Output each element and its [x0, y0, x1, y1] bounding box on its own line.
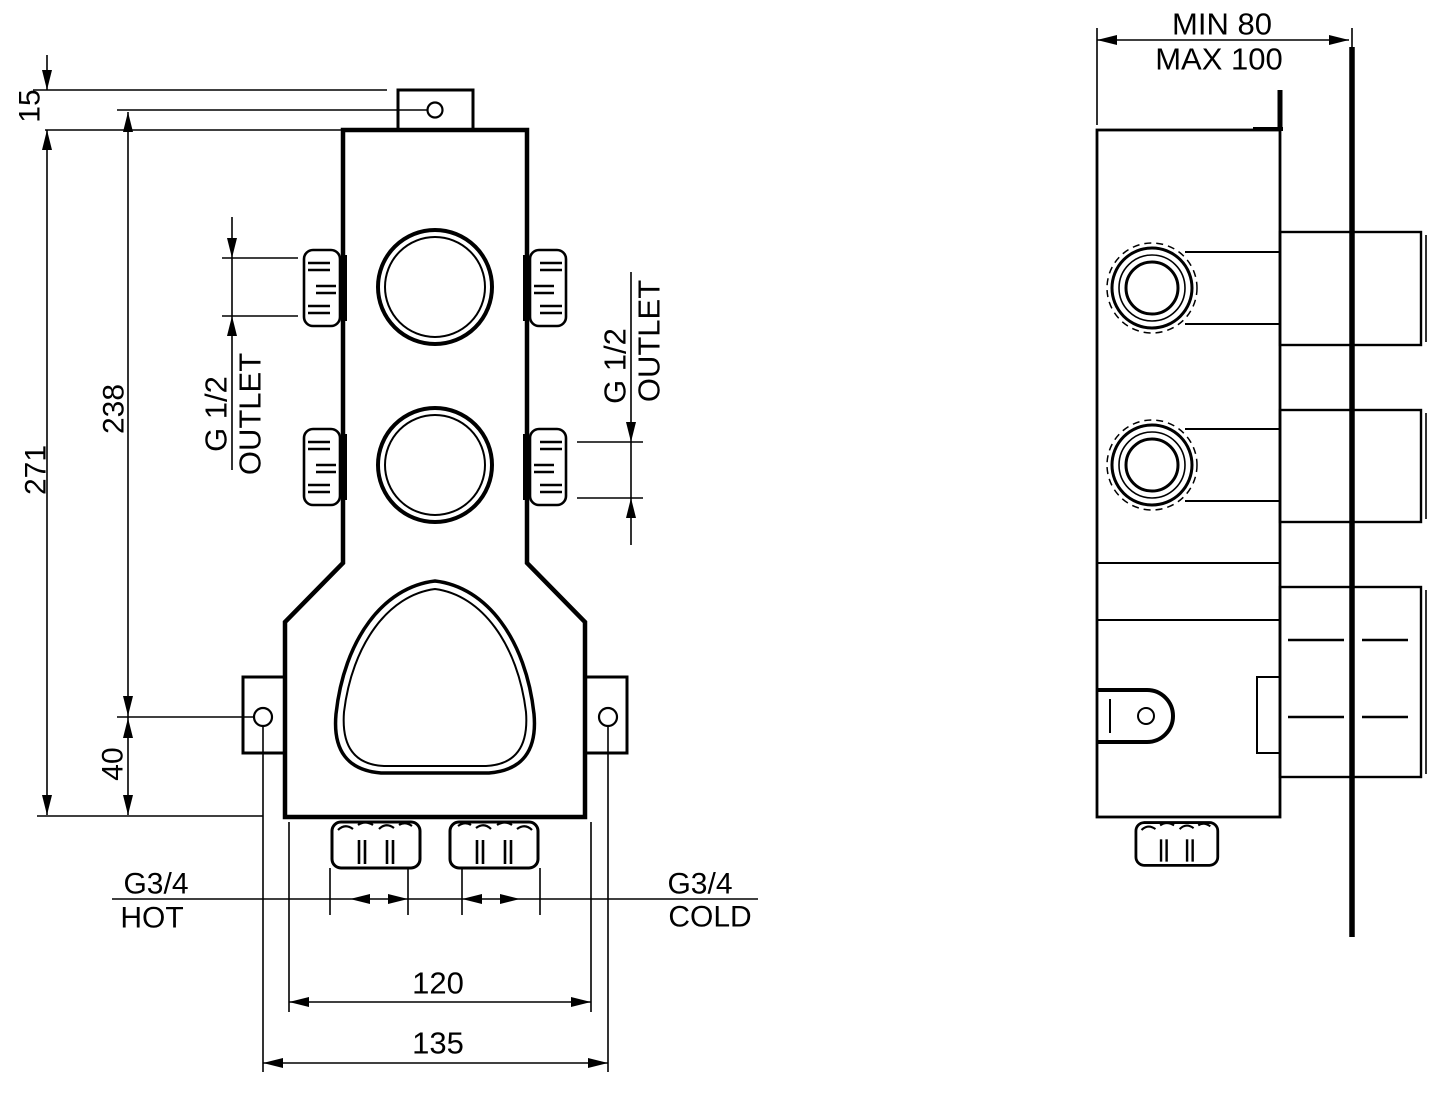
technical-drawing-sheet: 15 271 238 40 G 1/2 OUTLET G 1/2 OUTLET … — [0, 0, 1445, 1093]
inlet-fitting-cold — [450, 822, 538, 868]
side-dimensions: MIN 80 MAX 100 — [1097, 7, 1352, 126]
dim-label-min-depth: MIN 80 — [1172, 7, 1272, 42]
cartridge-opening-inner — [344, 589, 527, 766]
valve-technical-drawing: 15 271 238 40 G 1/2 OUTLET G 1/2 OUTLET … — [0, 0, 1445, 1093]
knob-opening-top-inner — [385, 237, 485, 337]
hot-thread-label: G3/4 — [123, 868, 188, 901]
valve-body-outline — [285, 130, 585, 817]
side-body-outline — [1097, 130, 1280, 817]
outlet-fitting-bottom-left — [304, 429, 346, 505]
arrow — [462, 894, 482, 904]
arrow — [350, 894, 370, 904]
cold-label: COLD — [668, 901, 751, 934]
front-dimensions: 15 271 238 40 G 1/2 OUTLET G 1/2 OUTLET … — [14, 55, 759, 1072]
arrow — [289, 997, 309, 1007]
knob-opening-bottom-inner — [385, 415, 485, 515]
mounting-ear-right — [585, 677, 627, 753]
arrow — [227, 316, 237, 336]
dim-label-40: 40 — [97, 747, 130, 780]
outlet-right-thread-label: G 1/2 — [598, 328, 633, 404]
arrow — [123, 112, 133, 132]
outlet-right-label: OUTLET — [632, 280, 667, 402]
arrow — [227, 238, 237, 258]
outlet-fitting-bottom-right — [524, 429, 566, 505]
dim-label-238: 238 — [98, 384, 131, 434]
arrow — [588, 1058, 608, 1068]
side-ear-profile — [1097, 690, 1173, 742]
arrow — [1097, 35, 1117, 45]
ear-hole-right — [599, 708, 617, 726]
dim-label-120: 120 — [412, 966, 464, 1001]
arrow — [626, 422, 636, 442]
cartridge-opening-outer — [336, 581, 535, 773]
arrow — [571, 997, 591, 1007]
arrow — [123, 795, 133, 815]
side-ear-hole — [1138, 708, 1154, 724]
hot-label: HOT — [120, 902, 183, 935]
dim-label-271: 271 — [20, 445, 53, 495]
inlet-fitting-hot — [332, 822, 420, 868]
tab-screw-hole — [428, 103, 443, 118]
side-view — [1097, 47, 1426, 937]
side-ear-boss — [1257, 677, 1280, 753]
side-inlet-fitting — [1136, 823, 1218, 866]
outlet-left-label: OUTLET — [233, 353, 268, 475]
arrow — [626, 498, 636, 518]
knob-opening-bottom — [378, 408, 492, 522]
mounting-ear-left — [243, 677, 285, 753]
arrow — [123, 718, 133, 738]
outlet-port-bottom — [1107, 420, 1197, 510]
arrow — [42, 795, 52, 815]
arrow — [42, 70, 52, 90]
outlet-fitting-top-left — [304, 250, 346, 326]
arrow — [1329, 35, 1349, 45]
ear-hole-left — [254, 708, 272, 726]
arrow — [123, 696, 133, 716]
arrow — [263, 1058, 283, 1068]
front-view — [243, 90, 627, 868]
outlet-port-top — [1107, 243, 1197, 333]
outlet-left-thread-label: G 1/2 — [199, 376, 234, 452]
dim-label-135: 135 — [412, 1026, 464, 1061]
dim-label-max-depth: MAX 100 — [1155, 42, 1283, 77]
cold-thread-label: G3/4 — [667, 868, 732, 901]
arrow — [42, 130, 52, 150]
arrow — [388, 894, 408, 904]
outlet-fitting-top-right — [524, 250, 566, 326]
dim-label-15: 15 — [14, 89, 47, 122]
knob-opening-top — [378, 230, 492, 344]
arrow — [500, 894, 520, 904]
